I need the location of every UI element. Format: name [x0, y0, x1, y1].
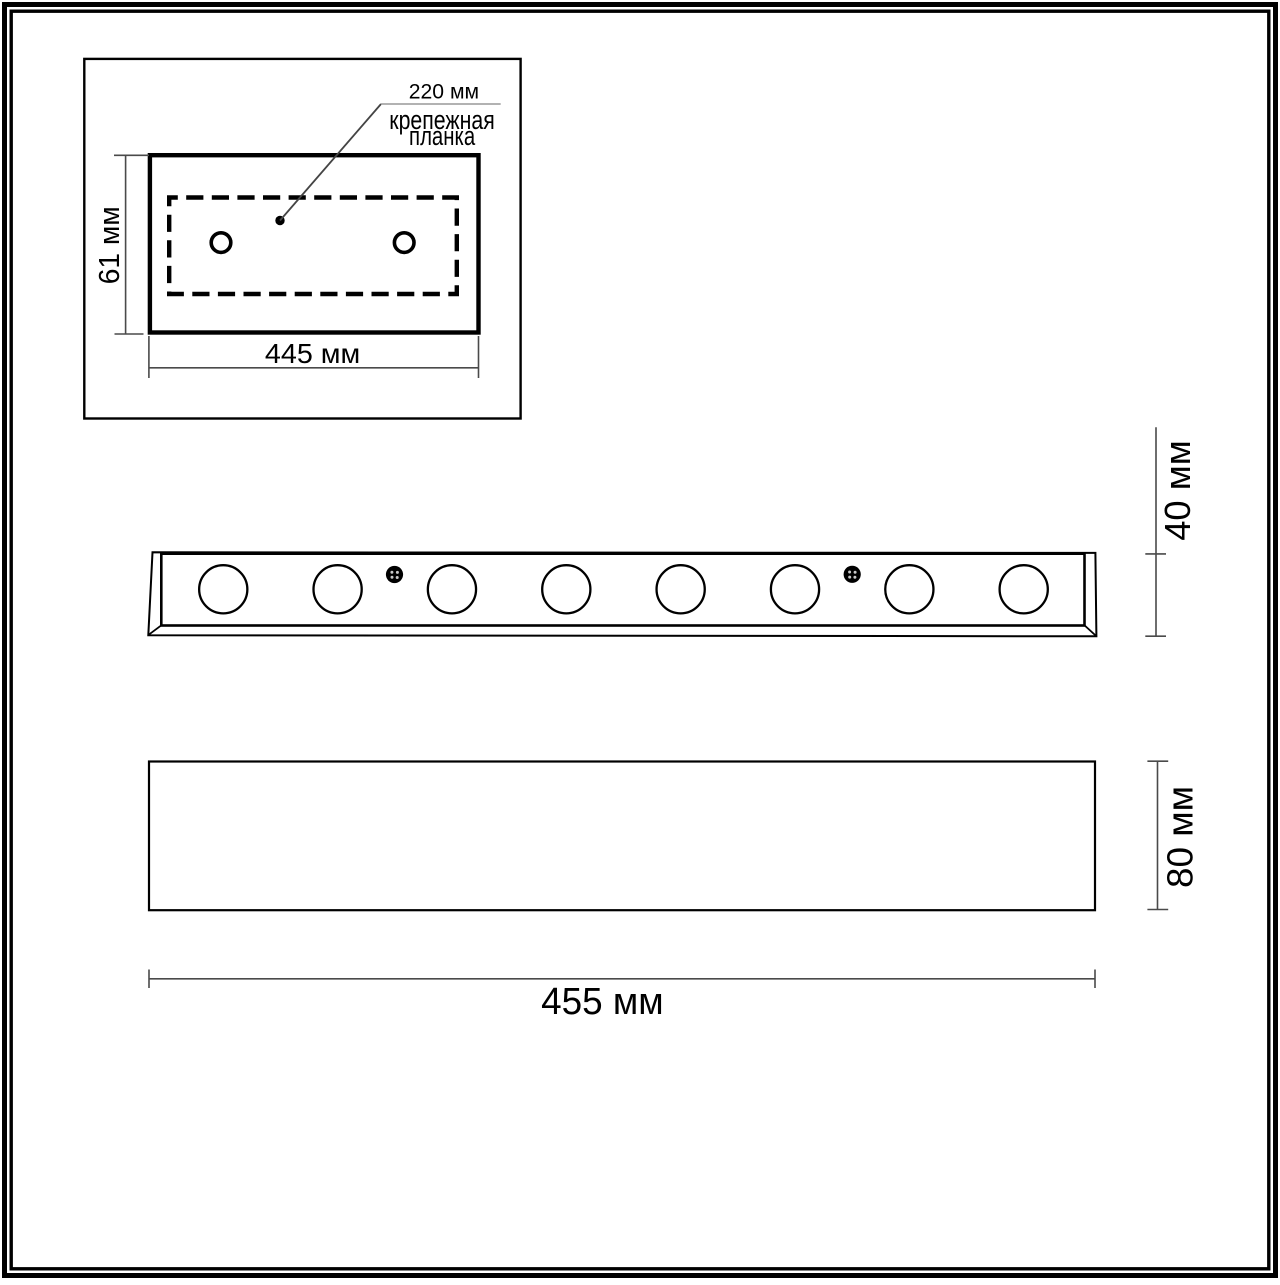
svg-text:455 мм: 455 мм [541, 981, 664, 1023]
svg-text:планка: планка [409, 121, 476, 151]
svg-text:80 мм: 80 мм [1160, 786, 1201, 888]
svg-text:40 мм: 40 мм [1157, 440, 1198, 541]
svg-text:445 мм: 445 мм [265, 338, 360, 369]
svg-text:61 мм: 61 мм [94, 206, 126, 284]
svg-text:220 мм: 220 мм [409, 81, 479, 104]
